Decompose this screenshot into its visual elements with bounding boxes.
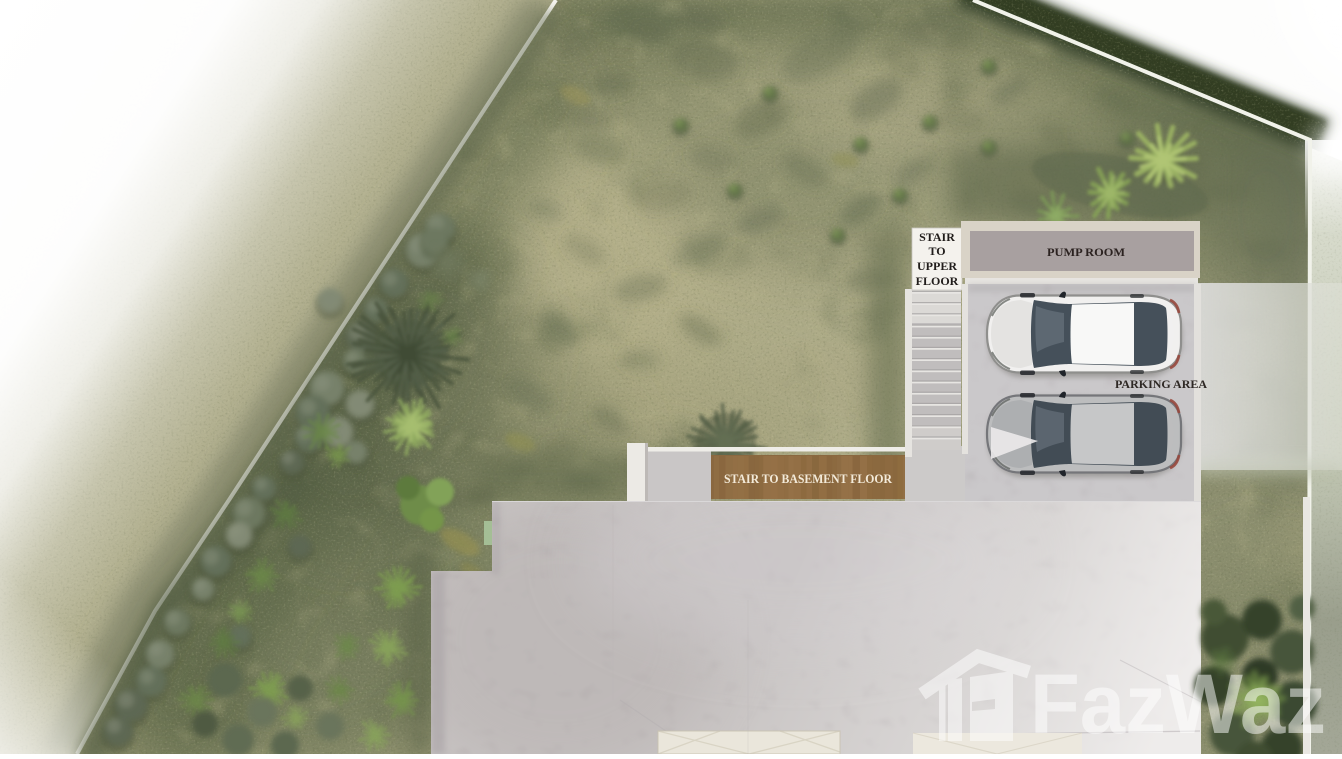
svg-text:FazWaz: FazWaz [1030, 657, 1326, 751]
svg-text:PARKING AREA: PARKING AREA [1115, 379, 1208, 391]
svg-text:STAIR TO BASEMENT FLOOR: STAIR TO BASEMENT FLOOR [724, 472, 893, 486]
svg-text:TO: TO [928, 244, 945, 258]
svg-text:UPPER: UPPER [917, 259, 957, 273]
svg-text:FLOOR: FLOOR [916, 274, 959, 288]
svg-text:PUMP ROOM: PUMP ROOM [1047, 247, 1125, 259]
svg-text:STAIR: STAIR [919, 230, 955, 244]
